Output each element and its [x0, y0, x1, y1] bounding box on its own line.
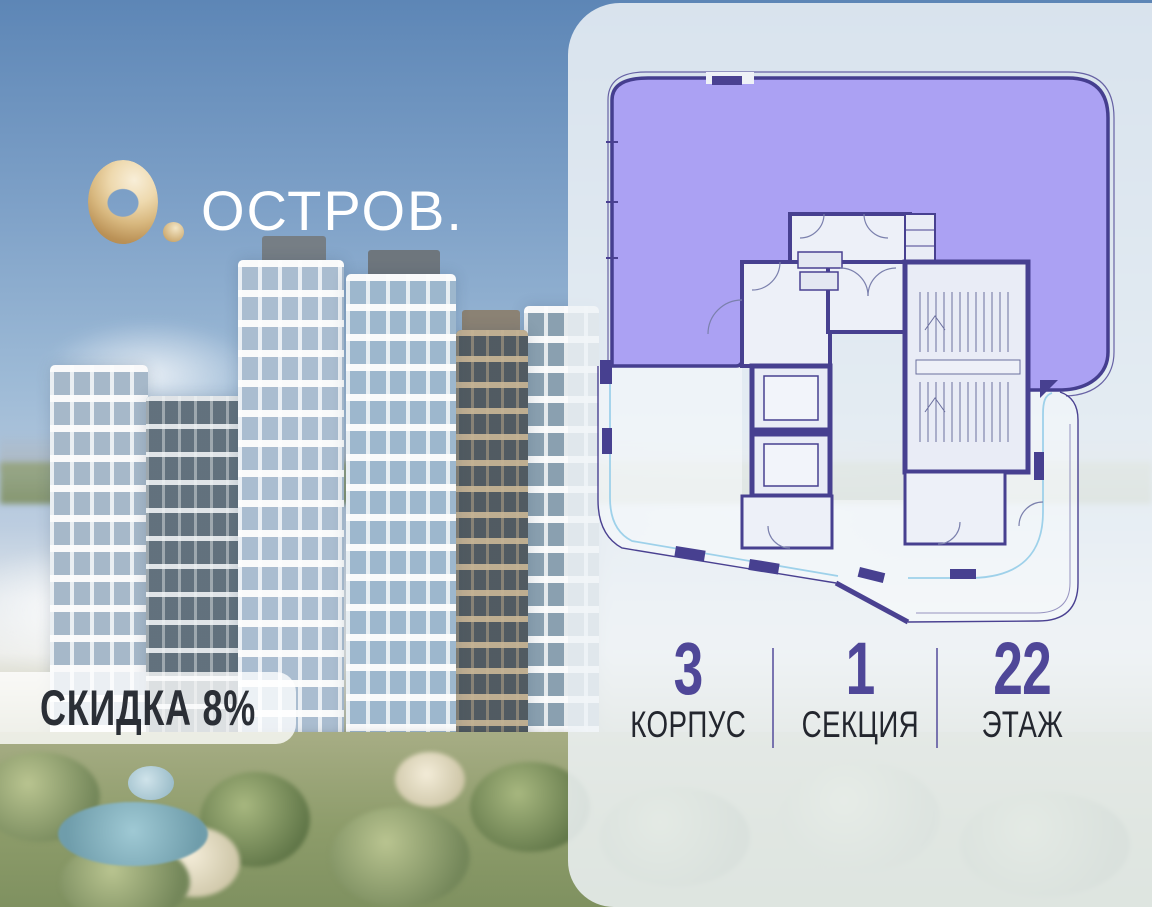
tower-windows — [456, 330, 528, 785]
gold-dot-icon — [163, 222, 184, 242]
tower-windows — [346, 274, 456, 794]
floorplan-panel — [568, 3, 1152, 907]
discount-badge-label: СКИДКА 8% — [40, 679, 256, 737]
gold-ring-logo-icon — [88, 160, 158, 244]
pool — [58, 802, 208, 866]
page: ОСТРОВ. — [0, 0, 1152, 907]
playground — [128, 766, 174, 800]
tower — [346, 274, 456, 794]
brand-wordmark: ОСТРОВ. — [201, 181, 464, 241]
flower-bed — [395, 752, 465, 807]
tree-blob — [330, 807, 470, 907]
discount-badge: СКИДКА 8% — [0, 672, 296, 744]
tower — [456, 330, 528, 785]
